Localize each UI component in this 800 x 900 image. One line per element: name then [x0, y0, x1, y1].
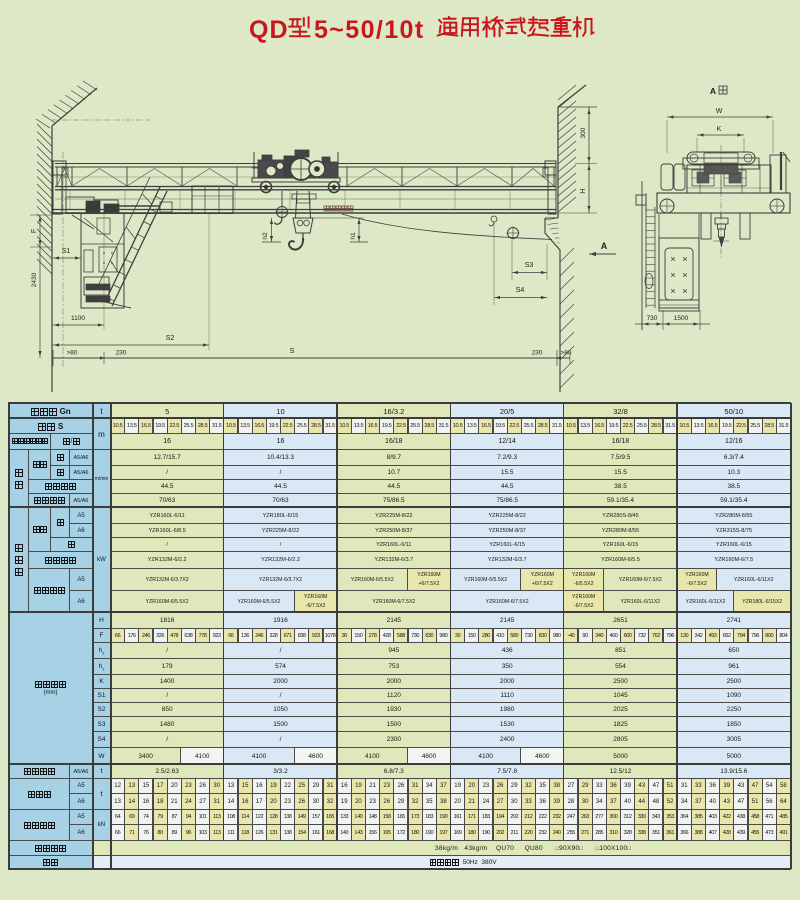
svg-text:S3: S3 [525, 262, 534, 269]
svg-text:>80: >80 [66, 350, 77, 357]
svg-text:230: 230 [116, 350, 127, 357]
svg-text:300: 300 [580, 127, 587, 138]
svg-text:2430: 2430 [31, 272, 38, 287]
svg-text:730: 730 [647, 315, 658, 322]
svg-text:>80: >80 [560, 350, 571, 357]
svg-text:A: A [601, 241, 608, 251]
svg-text:K: K [717, 126, 722, 133]
svg-text:h1: h1 [350, 232, 357, 240]
svg-text:H: H [578, 188, 587, 193]
svg-text:230: 230 [532, 350, 543, 357]
svg-text:S: S [289, 346, 294, 355]
svg-text:h2: h2 [262, 232, 269, 240]
svg-text:S1: S1 [62, 248, 71, 255]
svg-text:1100: 1100 [71, 315, 85, 322]
svg-text:S4: S4 [516, 287, 525, 294]
svg-text:W: W [716, 108, 723, 115]
svg-text:S2: S2 [166, 335, 175, 342]
svg-text:F: F [31, 229, 38, 233]
svg-text:A: A [710, 86, 716, 96]
svg-text:1500: 1500 [674, 315, 689, 322]
